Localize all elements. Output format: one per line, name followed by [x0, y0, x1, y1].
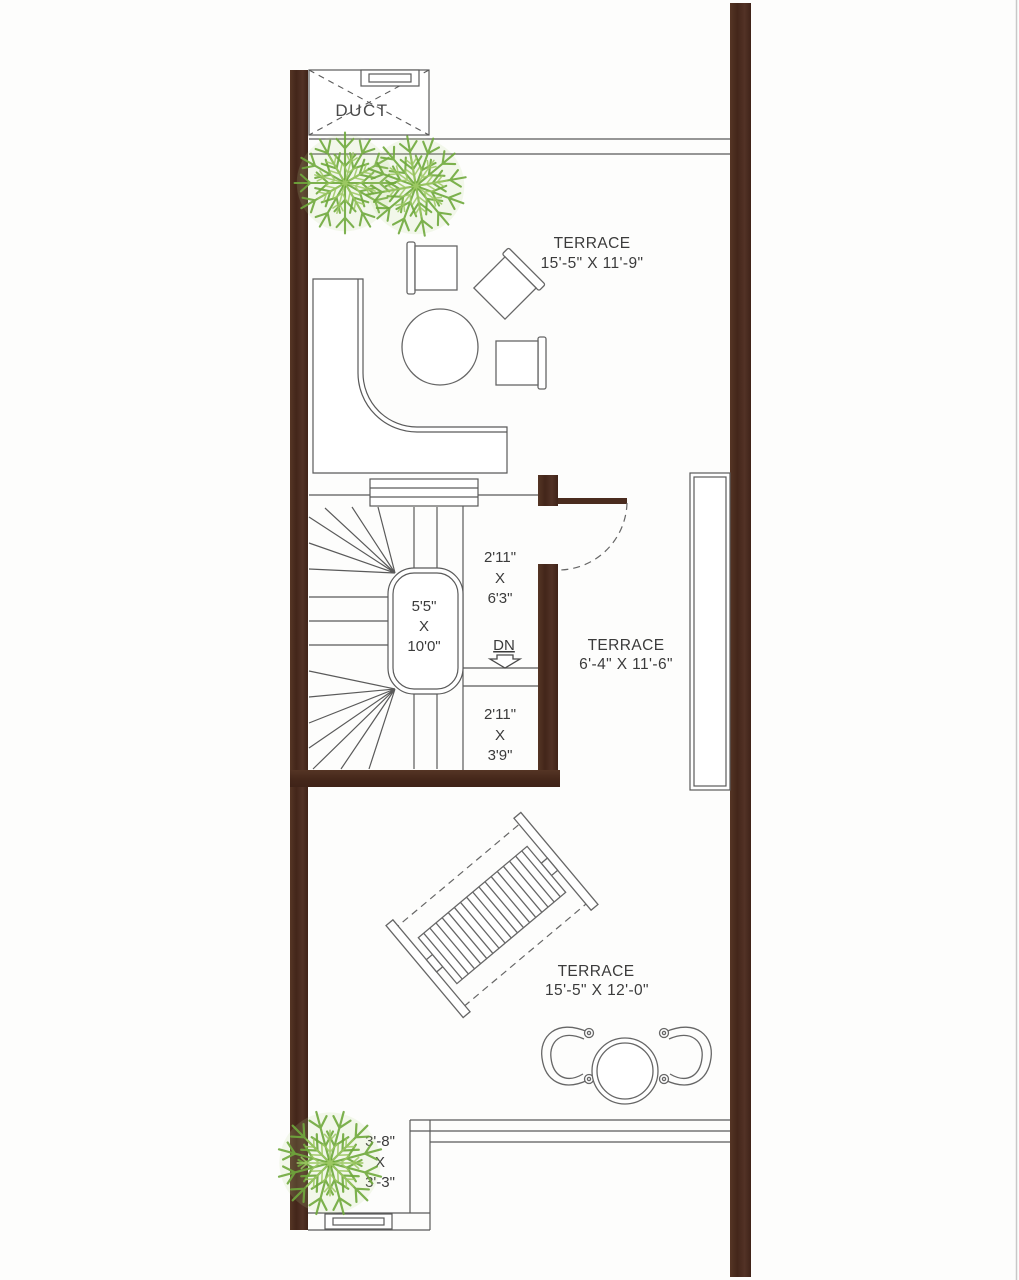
stair-door: [558, 498, 627, 570]
nook-window: [325, 1214, 392, 1229]
upper-terrace-dims: 15'-5" X 11'-9": [541, 255, 644, 272]
lower-landing-dim-3: 3'9": [488, 747, 513, 764]
curved-bench: [313, 279, 507, 473]
duct-vent-window: [361, 70, 419, 86]
lower-terrace-title: TERRACE: [558, 963, 635, 980]
plant-icon: [351, 121, 480, 250]
lower-landing-dim-2: X: [495, 727, 505, 744]
middle-terrace-dims: 6'-4" X 11'-6": [579, 656, 673, 673]
stair-well-dim-2: X: [419, 618, 429, 635]
lower-landing: 2'11" X 3'9": [484, 706, 516, 764]
stair-well-dim-3: 10'0": [407, 638, 440, 655]
upper-terrace-title: TERRACE: [554, 235, 631, 252]
bistro-table: [592, 1038, 658, 1104]
right-wall: [730, 3, 751, 1277]
chair-corner: [471, 248, 545, 322]
middle-terrace-title: TERRACE: [588, 637, 665, 654]
entry-step: [370, 479, 478, 506]
staircase: 5'5" X 10'0" 2'11" X 6'3" DN 2'11" X 3'9…: [309, 479, 627, 770]
middle-terrace: TERRACE 6'-4" X 11'-6": [579, 637, 673, 673]
stair-bottom-wall: [290, 770, 560, 787]
upper-landing: 2'11" X 6'3" DN: [484, 549, 520, 668]
round-table: [402, 309, 478, 385]
upper-landing-dim-2: X: [495, 570, 505, 587]
stair-central-landing: 5'5" X 10'0": [388, 568, 463, 694]
bottom-parapet: [410, 1120, 730, 1230]
bistro-chair-left: [542, 1027, 594, 1085]
duct-room: DUCT: [309, 70, 429, 135]
chair-top: [407, 242, 457, 294]
door-jamb-upper: [538, 475, 558, 506]
door-swing-arc: [558, 503, 627, 570]
wall-planter: [690, 473, 730, 790]
upper-landing-dim-3: 6'3": [488, 590, 513, 607]
floor-plan-page: DUCT TERRACE 15'-5" X 11'-9": [0, 0, 1019, 1280]
stair-right-wall: [538, 564, 558, 770]
chair-right: [496, 337, 546, 389]
left-wall: [290, 70, 308, 1230]
floor-plan-drawing: DUCT TERRACE 15'-5" X 11'-9": [0, 0, 1019, 1280]
lower-terrace: TERRACE 15'-5" X 12'-0": [386, 812, 711, 1104]
bistro-chair-right: [660, 1027, 712, 1085]
lower-landing-dim-1: 2'11": [484, 706, 516, 723]
lower-terrace-dims: 15'-5" X 12'-0": [545, 982, 649, 999]
down-label: DN: [493, 637, 515, 654]
stair-well-dim-1: 5'5": [412, 598, 437, 615]
door-leaf: [558, 498, 627, 504]
bistro-set: [542, 1027, 712, 1104]
terrace-seating: [402, 242, 546, 389]
upper-terrace: TERRACE 15'-5" X 11'-9": [313, 235, 730, 790]
duct-label: DUCT: [335, 101, 388, 120]
down-arrow-icon: [490, 655, 520, 668]
plant-icon: [265, 1098, 394, 1227]
upper-landing-dim-1: 2'11": [484, 549, 516, 566]
